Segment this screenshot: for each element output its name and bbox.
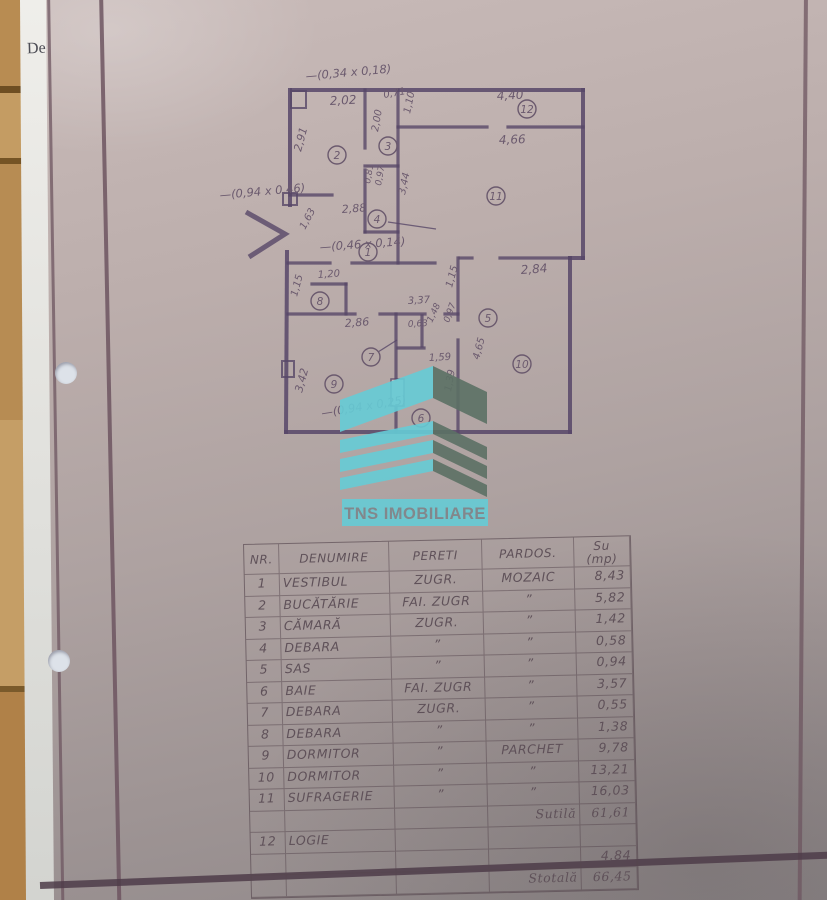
table-cell-per: ZUGR. [393,699,486,723]
room-area-table: NR.DENUMIREPERETIPARDOS.Su (mp)1VESTIBUL… [243,535,639,898]
table-header-cell: DENUMIRE [279,542,390,574]
table-cell-nr: 12 [251,832,286,854]
table-cell-su: 5,82 [575,588,631,611]
table-cell-per: ” [394,742,487,766]
table-cell-par: PARCHET [487,739,579,763]
table-cell-su: 8,43 [575,566,631,589]
table-cell-per: ” [395,785,488,809]
table-cell-nr: 8 [248,725,283,747]
table-header-cell: Su (mp) [574,536,631,567]
table-cell-nr: 3 [246,617,281,639]
table-cell-den: SUFRAGERIE [285,787,395,811]
table-cell-per [396,828,489,852]
table-cell-par [488,825,580,849]
table-cell-par: MOZAIC [483,567,575,591]
table-cell-den: SAS [282,658,392,682]
table-cell-su: 4,84 [581,846,637,869]
table-cell-den: BAIE [282,679,392,703]
table-cell-nr [250,811,285,833]
table-cell-per: FAI. ZUGR [390,591,483,615]
table-header-cell: PERETI [389,540,483,572]
table-cell-den [285,808,395,832]
table-header-cell: PARDOS. [482,537,575,569]
table-cell-par: ” [486,696,578,720]
table-cell-den: VESTIBUL [280,572,390,596]
table-cell-par: Stotală [489,868,581,892]
table-cell-nr [251,854,286,876]
table-cell-su: 0,58 [576,631,632,654]
table-cell-par [489,847,581,871]
table-cell-su: 1,42 [576,609,632,632]
table-cell-den: DORMITOR [284,744,394,768]
table-cell-par: ” [485,653,577,677]
table-cell-su [580,824,636,847]
table-cell-par: ” [488,782,580,806]
table-cell-den [286,851,396,875]
table-cell-su: 66,45 [581,867,637,890]
scanned-floorplan-document: De [0,0,827,900]
table-cell-per: ” [393,720,486,744]
table-header-cell: NR. [244,544,280,575]
table-cell-nr: 6 [247,682,282,704]
table-cell-nr: 5 [247,660,282,682]
table-cell-per [396,849,489,873]
logo-roof-side [433,366,487,424]
table-cell-den: DEBARA [283,722,393,746]
table-cell-nr: 1 [245,574,280,596]
table-cell-par: ” [484,632,576,656]
table-cell-par: ” [487,761,579,785]
table-cell-su: 0,94 [577,652,633,675]
table-cell-su: 16,03 [579,781,635,804]
table-cell-su: 61,61 [580,803,636,826]
table-cell-den: LOGIE [286,830,396,854]
table-cell-per [395,806,488,830]
table-cell-su: 3,57 [577,674,633,697]
punch-hole [48,650,70,672]
table-cell-per [396,870,489,894]
table-cell-nr [252,875,287,897]
table-cell-per: ZUGR. [390,570,483,594]
table-cell-den: DEBARA [281,636,391,660]
table-cell-par: ” [483,589,575,613]
table-cell-par: ” [485,675,577,699]
logo-roof-front [340,366,433,432]
table-cell-per: FAI. ZUGR [392,677,485,701]
table-cell-nr: 11 [250,789,285,811]
table-cell-den [287,873,397,897]
logo-text: TNS IMOBILIARE [344,505,486,523]
table-cell-den: DORMITOR [284,765,394,789]
table-cell-den: BUCĂTĂRIE [280,593,390,617]
logo-building-icon: TNS IMOBILIARE [340,366,488,526]
table-cell-su: 9,78 [579,738,635,761]
table-cell-per: ZUGR. [391,613,484,637]
table-cell-nr: 9 [249,746,284,768]
punch-hole [55,362,77,384]
table-cell-per: ” [392,656,485,680]
table-cell-nr: 10 [249,768,284,790]
table-cell-su: 1,38 [578,717,634,740]
table-cell-nr: 7 [248,703,283,725]
table-cell-per: ” [394,763,487,787]
table-cell-nr: 4 [246,639,281,661]
table-cell-per: ” [391,634,484,658]
table-cell-den: DEBARA [283,701,393,725]
table-cell-par: ” [486,718,578,742]
table-cell-den: CĂMARĂ [281,615,391,639]
table-cell-nr: 2 [245,596,280,618]
table-cell-su: 0,55 [578,695,634,718]
table-cell-su: 13,21 [579,760,635,783]
table-cell-par: ” [484,610,576,634]
table-cell-par: Sutilă [488,804,580,828]
